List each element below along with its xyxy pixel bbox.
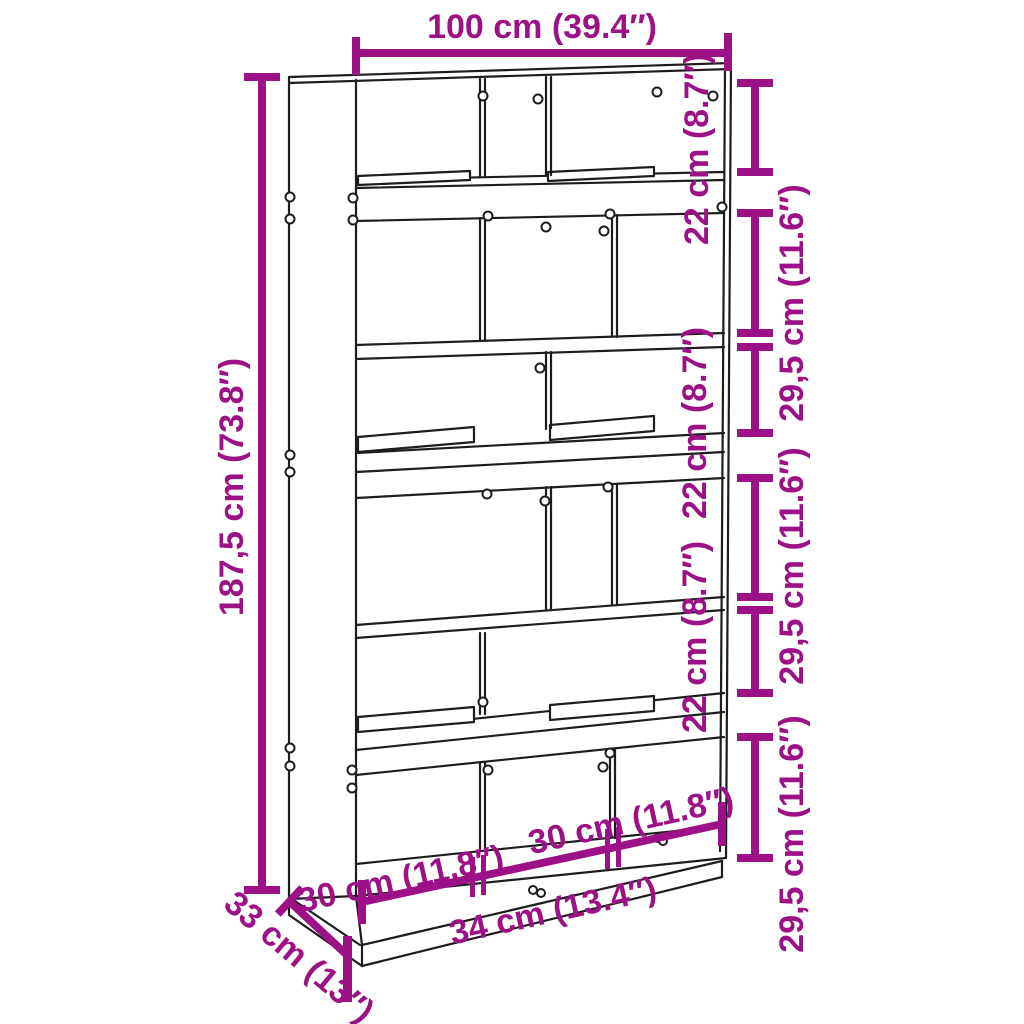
right-segment-label-2: 29,5 cm (11.6″)	[775, 184, 809, 421]
right-segment-label-3: 22 cm (8.7″)	[678, 327, 712, 519]
left-height-dimension-line	[258, 80, 266, 888]
top-width-dimension-line	[356, 49, 728, 57]
product-dimension-diagram: 100 cm (39.4″) 187,5 cm (73.8″) 22 cm (8…	[0, 0, 1024, 1024]
right-segment-label-5: 22 cm (8.7″)	[678, 541, 712, 733]
right-segment-label-4: 29,5 cm (11.6″)	[775, 447, 809, 684]
furniture-line-art	[0, 0, 1024, 1024]
right-segment-label-1: 22 cm (8.7″)	[680, 53, 714, 245]
right-segment-label-6: 29,5 cm (11.6″)	[775, 715, 809, 952]
left-height-label: 187,5 cm (73.8″)	[215, 358, 249, 616]
right-segment-dimension-lines	[737, 79, 773, 862]
top-width-label: 100 cm (39.4″)	[427, 10, 657, 44]
